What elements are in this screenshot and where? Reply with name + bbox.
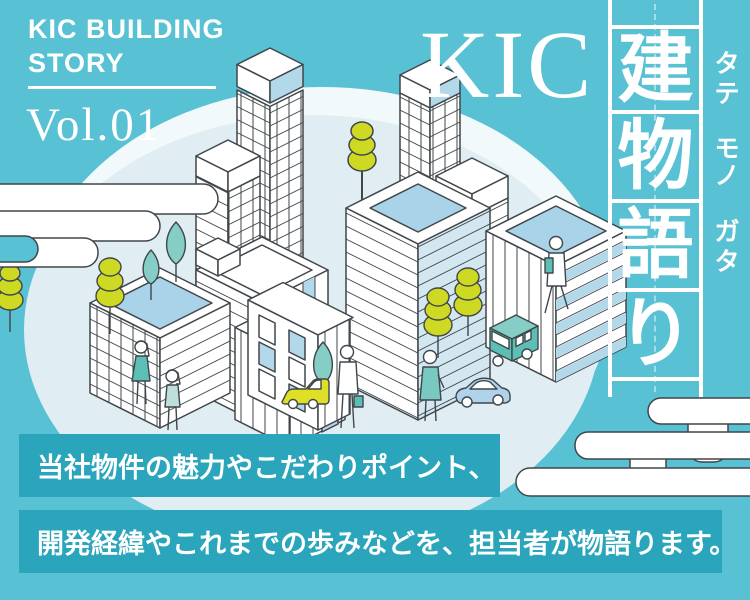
volume-number: Vol.01 (26, 98, 161, 152)
title-kanji-3: 語 (608, 202, 703, 289)
caption-text-1: 当社物件の魅力やこだわりポイント、 (37, 446, 495, 485)
furigana-char: ノ (710, 156, 744, 192)
yellow-tree-icon (0, 265, 23, 332)
title-kanji-4: り (608, 291, 703, 378)
caption-bar-1: 当社物件の魅力やこだわりポイント、 (19, 434, 500, 497)
title-latin: KIC (420, 16, 610, 114)
series-title: KIC BUILDING STORY (28, 12, 225, 80)
caption-bar-2: 開発経緯やこれまでの歩みなどを、担当者が物語ります。 (19, 510, 722, 573)
furigana-char: テ (710, 74, 744, 110)
title-underline (28, 86, 216, 89)
caption-text-2: 開発経緯やこれまでの歩みなどを、担当者が物語ります。 (37, 522, 736, 561)
furigana-char: タ (710, 242, 744, 278)
title-kanji-1: 建 (608, 28, 703, 111)
title-kanji-2: 物 (608, 113, 703, 200)
banner: KIC BUILDING STORY Vol.01 KIC 建 物 語 り タ … (0, 0, 750, 600)
